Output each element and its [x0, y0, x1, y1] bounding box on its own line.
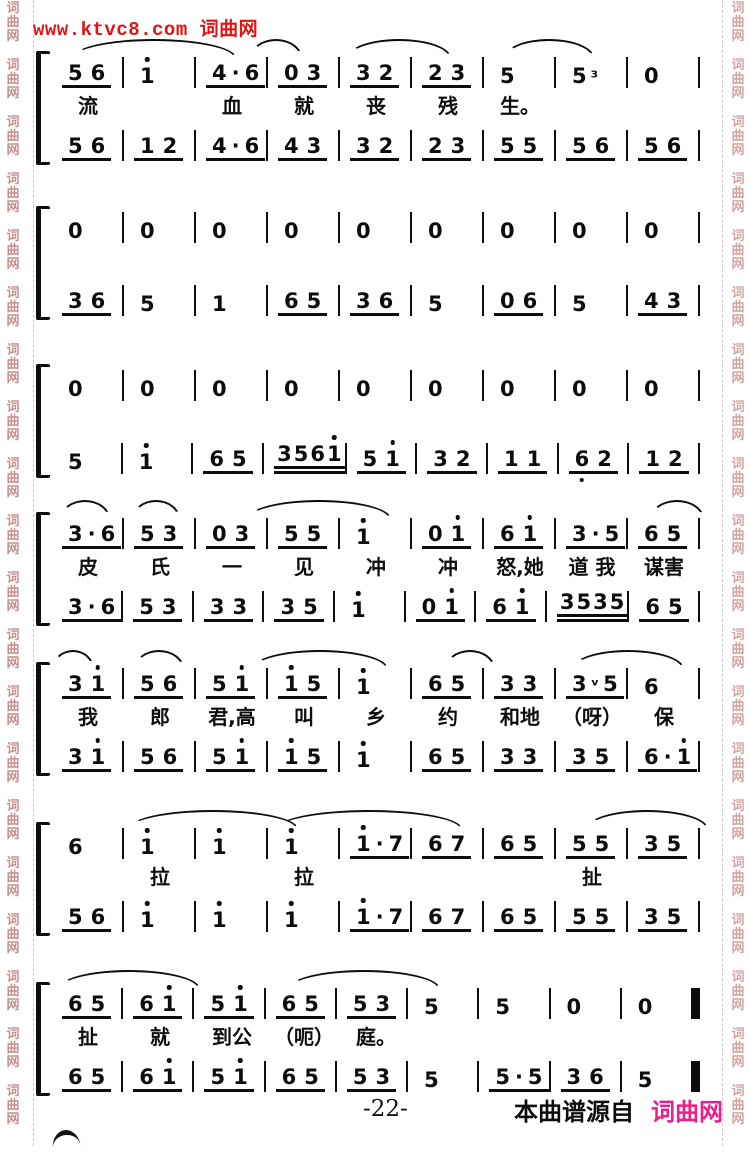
lyric-syllable: 拉 [124, 863, 196, 893]
watermark-char: 网 [729, 600, 747, 614]
watermark-char: 网 [4, 771, 22, 785]
measure: 11 [488, 443, 559, 474]
lyric-syllable [124, 247, 196, 277]
lyric-syllable [268, 247, 340, 277]
slur-arcs [52, 810, 700, 828]
watermark-char: 网 [4, 258, 22, 272]
watermark-char: 词 [4, 230, 22, 244]
voice-2-row: 3·653333510161353565 [52, 591, 700, 622]
lyrics-row: 我郎君,高叫乡约和地（呀）保 [52, 703, 700, 733]
lyric-syllable [52, 863, 124, 893]
measure: 0 [268, 212, 340, 243]
watermark-char: 词 [729, 2, 747, 16]
measure: 0 [412, 370, 484, 401]
system-bracket [36, 512, 50, 626]
watermark-char: 曲 [4, 301, 22, 315]
measure: 01 [406, 591, 477, 622]
measure: 36 [52, 285, 124, 316]
slur-arc [250, 39, 302, 58]
lyric-syllable [556, 92, 628, 122]
slur-arc [445, 650, 495, 669]
measure: 56 [124, 741, 196, 772]
measure: 53 [337, 1061, 408, 1092]
system-bracket [36, 662, 50, 776]
measure: 1 [340, 668, 412, 699]
measure: 32 [340, 130, 412, 161]
watermark-char: 曲 [4, 985, 22, 999]
lyric-syllable: 君,高 [196, 703, 268, 733]
voice-1-row: 5614·603322355³0 [52, 57, 700, 88]
measure: 15 [268, 668, 340, 699]
measure: 0 [556, 212, 628, 243]
measure: 65 [484, 828, 556, 859]
watermark-char: 词 [4, 59, 22, 73]
measure: 43 [628, 285, 700, 316]
measure: 1 [268, 828, 340, 859]
lyric-syllable: 扯 [556, 863, 628, 893]
measure: 6 [52, 828, 124, 859]
watermark-char: 词 [729, 515, 747, 529]
watermark-char: 网 [729, 258, 747, 272]
measure: 5³ [556, 57, 628, 88]
watermark-char: 词 [4, 287, 22, 301]
watermark-char: 词 [4, 800, 22, 814]
watermark-char: 网 [729, 657, 747, 671]
lyric-syllable: 拉 [268, 863, 340, 893]
watermark-char: 词 [729, 230, 747, 244]
slur-arc [60, 500, 110, 519]
lyric-syllable [196, 405, 268, 435]
watermark-char: 曲 [4, 871, 22, 885]
lyric-syllable: （呀） [556, 703, 628, 733]
measure: 0 [268, 370, 340, 401]
lyric-syllable: 庭。 [340, 1023, 412, 1053]
watermark-char: 曲 [729, 16, 747, 30]
lyric-syllable: 道 我 [556, 553, 628, 583]
measure: 0 [340, 370, 412, 401]
lyric-syllable: 血 [196, 92, 268, 122]
lyrics-row: 皮氏一见冲冲怒,她道 我谋害 [52, 553, 700, 583]
lyric-syllable [340, 405, 412, 435]
measure: 5 [622, 1061, 700, 1092]
measure: 4·6 [196, 57, 268, 88]
watermark-char: 网 [4, 1113, 22, 1127]
measure: 56 [52, 130, 124, 161]
watermark-char: 曲 [729, 871, 747, 885]
measure: 67 [412, 901, 484, 932]
watermark-char: 曲 [4, 16, 22, 30]
watermark-char: 网 [729, 771, 747, 785]
lyrics-row: 拉拉扯 [52, 863, 700, 893]
lyric-syllable: 冲 [412, 553, 484, 583]
lyric-syllable: 怒,她 [484, 553, 556, 583]
slur-arcs [52, 970, 700, 988]
lyric-syllable [628, 1023, 700, 1053]
lyric-syllable [556, 247, 628, 277]
voice-2-row: 516535615132116212 [52, 443, 700, 474]
watermark-char: 曲 [729, 757, 747, 771]
measure: 0 [412, 212, 484, 243]
lyric-syllable: 谋害 [628, 553, 700, 583]
watermark-char: 网 [4, 372, 22, 386]
watermark-char: 曲 [729, 985, 747, 999]
watermark-char: 词 [4, 572, 22, 586]
footer-source-label: 本曲谱源自 [514, 1092, 634, 1127]
measure: 3ᵛ5 [556, 668, 628, 699]
slur-arc [347, 39, 451, 58]
watermark-char: 曲 [4, 472, 22, 486]
lyric-syllable [52, 247, 124, 277]
measure: 5 [556, 285, 628, 316]
lyric-syllable [556, 405, 628, 435]
lyric-syllable: 见 [268, 553, 340, 583]
lyrics-row: 扯就到公（呃）庭。 [52, 1023, 700, 1053]
watermark-char: 词 [729, 458, 747, 472]
lyric-syllable: 郎 [124, 703, 196, 733]
watermark-char: 网 [729, 315, 747, 329]
watermark-char: 网 [729, 144, 747, 158]
measure: 3535 [547, 591, 630, 622]
measure: 53 [124, 518, 196, 549]
measure: 61 [123, 988, 194, 1019]
slur-arc [586, 810, 708, 829]
lyric-syllable [196, 863, 268, 893]
measure: 35 [628, 828, 700, 859]
watermark-char: 词 [729, 173, 747, 187]
footer-site-name: 词曲网 [651, 1092, 723, 1127]
measure: 51 [347, 443, 418, 474]
watermark-char: 网 [4, 201, 22, 215]
measure: 55 [484, 130, 556, 161]
measure: 65 [412, 741, 484, 772]
measure: 12 [124, 130, 196, 161]
watermark-char: 词 [4, 686, 22, 700]
watermark-char: 词 [4, 2, 22, 16]
measure: 0 [52, 370, 124, 401]
music-system-6: 61111·767655535 拉拉扯 561111·767655535 [52, 828, 700, 932]
measure: 0 [484, 370, 556, 401]
watermark-char: 网 [729, 486, 747, 500]
measure: 65 [412, 668, 484, 699]
lyric-syllable: 我 [52, 703, 124, 733]
slur-arcs [52, 352, 700, 370]
measure: 65 [266, 988, 337, 1019]
measure: 1 [196, 285, 268, 316]
voice-1-row: 000000000 [52, 212, 700, 243]
measure: 36 [340, 285, 412, 316]
watermark-char: 曲 [729, 358, 747, 372]
measure: 51 [196, 668, 268, 699]
watermark-char: 网 [4, 144, 22, 158]
watermark-char: 曲 [4, 757, 22, 771]
measure: 5·5 [479, 1061, 550, 1092]
voice-2-row: 656151655355·5365 [52, 1061, 700, 1092]
lyric-syllable: 到公 [196, 1023, 268, 1053]
watermark-char: 曲 [729, 187, 747, 201]
measure: 55 [268, 518, 340, 549]
measure: 06 [484, 285, 556, 316]
measure: 55 [556, 901, 628, 932]
measure: 43 [268, 130, 340, 161]
lyric-syllable: 丧 [340, 92, 412, 122]
watermark-char: 词 [729, 800, 747, 814]
music-system-2: 000000000 36516536506543 [52, 212, 700, 316]
watermark-char: 词 [729, 914, 747, 928]
measure: 56 [52, 901, 124, 932]
measure: 55 [556, 828, 628, 859]
voice-2-row: 561111·767655535 [52, 901, 700, 932]
watermark-char: 词 [729, 572, 747, 586]
slur-arc [288, 970, 440, 989]
watermark-char: 词 [4, 743, 22, 757]
voice-1-row: 31565115165333ᵛ56 [52, 668, 700, 699]
lyric-syllable: 保 [628, 703, 700, 733]
watermark-char: 曲 [4, 1042, 22, 1056]
watermark-char: 词 [729, 344, 747, 358]
lyric-syllable: 就 [124, 1023, 196, 1053]
lyrics-row: 流血就丧残生。 [52, 92, 700, 122]
measure: 1 [123, 443, 194, 474]
watermark-char: 网 [729, 30, 747, 44]
lyric-syllable: 约 [412, 703, 484, 733]
watermark-char: 词 [729, 629, 747, 643]
watermark-char: 网 [4, 87, 22, 101]
measure: 56 [124, 668, 196, 699]
measure: 0 [484, 212, 556, 243]
watermark-char: 词 [4, 344, 22, 358]
lyric-syllable [268, 405, 340, 435]
watermark-char: 词 [4, 629, 22, 643]
lyric-syllable: 流 [52, 92, 124, 122]
watermark-char: 词 [729, 743, 747, 757]
measure: 03 [196, 518, 268, 549]
watermark-char: 曲 [4, 130, 22, 144]
lyric-syllable [628, 92, 700, 122]
measure: 1 [340, 741, 412, 772]
measure: 65 [52, 1061, 123, 1092]
slur-arc [504, 39, 594, 58]
watermark-char: 网 [4, 315, 22, 329]
system-bracket [36, 822, 50, 936]
measure: 61 [123, 1061, 194, 1092]
measure: 53 [123, 591, 194, 622]
watermark-char: 网 [4, 999, 22, 1013]
lyric-syllable: 生。 [484, 92, 556, 122]
measure: 3·6 [52, 591, 123, 622]
watermark-char: 词 [4, 116, 22, 130]
watermark-char: 曲 [4, 358, 22, 372]
measure: 0 [556, 370, 628, 401]
music-system-5: 31565115165333ᵛ56 我郎君,高叫乡约和地（呀）保 3156511… [52, 668, 700, 772]
slur-arc [58, 970, 200, 989]
lyrics-row [52, 247, 700, 277]
measure: 1 [335, 591, 406, 622]
watermark-char: 网 [729, 714, 747, 728]
watermark-char: 网 [729, 429, 747, 443]
slur-arcs [52, 39, 700, 57]
watermark-char: 曲 [4, 187, 22, 201]
watermark-char: 网 [729, 543, 747, 557]
measure: 0 [622, 988, 700, 1019]
watermark-char: 词 [729, 287, 747, 301]
measure: 5 [479, 988, 550, 1019]
lyric-syllable [412, 247, 484, 277]
watermark-char: 曲 [729, 1099, 747, 1113]
measure: 0 [124, 212, 196, 243]
measure: 51 [194, 1061, 265, 1092]
watermark-char: 网 [729, 1113, 747, 1127]
measure: 0 [628, 212, 700, 243]
voice-1-row: 000000000 [52, 370, 700, 401]
system-bracket [36, 206, 50, 320]
measure: 12 [629, 443, 700, 474]
lyric-syllable [124, 92, 196, 122]
watermark-char: 曲 [4, 928, 22, 942]
watermark-char: 曲 [729, 244, 747, 258]
watermark-char: 曲 [4, 73, 22, 87]
page-number: -22- [363, 1096, 408, 1122]
measure: 0 [628, 57, 700, 88]
measure: 5 [124, 285, 196, 316]
measure: 56 [628, 130, 700, 161]
watermark-char: 词 [729, 401, 747, 415]
measure: 51 [194, 988, 265, 1019]
measure: 6 [628, 668, 700, 699]
measure: 0 [628, 370, 700, 401]
measure: 67 [412, 828, 484, 859]
measure: 61 [484, 518, 556, 549]
system-bracket [36, 51, 50, 165]
lyric-syllable [628, 247, 700, 277]
measure: 23 [412, 130, 484, 161]
measure: 5 [408, 988, 479, 1019]
music-system-3: 000000000 516535615132116212 [52, 370, 700, 474]
measure: 23 [412, 57, 484, 88]
watermark-char: 曲 [729, 301, 747, 315]
lyric-syllable [52, 405, 124, 435]
watermark-char: 网 [729, 1056, 747, 1070]
measure: 1 [196, 901, 268, 932]
watermark-char: 网 [4, 429, 22, 443]
measure: 5 [408, 1061, 479, 1092]
watermark-char: 网 [729, 372, 747, 386]
watermark-char: 曲 [729, 415, 747, 429]
measure: 3·6 [52, 518, 124, 549]
slur-arcs [52, 650, 700, 668]
measure: 3561 [264, 443, 347, 474]
measure: 35 [556, 741, 628, 772]
measure: 1·7 [340, 901, 412, 932]
watermark-char: 词 [729, 971, 747, 985]
watermark-char: 词 [4, 1085, 22, 1099]
music-system-7: 65615165535500 扯就到公（呃）庭。 656151655355·53… [52, 988, 700, 1092]
lyric-syllable: 一 [196, 553, 268, 583]
measure: 0 [196, 212, 268, 243]
measure: 62 [559, 443, 630, 474]
lyric-syllable: 就 [268, 92, 340, 122]
watermark-char: 曲 [4, 586, 22, 600]
lyric-syllable: 残 [412, 92, 484, 122]
measure: 65 [52, 988, 123, 1019]
watermark-char: 网 [729, 942, 747, 956]
watermark-char: 词 [4, 914, 22, 928]
measure: 33 [484, 741, 556, 772]
measure: 0 [196, 370, 268, 401]
watermark-char: 词 [4, 173, 22, 187]
watermark-char: 词 [729, 686, 747, 700]
watermark-char: 曲 [729, 130, 747, 144]
watermark-char: 网 [729, 999, 747, 1013]
lyric-syllable [340, 863, 412, 893]
right-edge-dashed-line [722, 0, 723, 1146]
measure: 51 [196, 741, 268, 772]
measure: 0 [340, 212, 412, 243]
measure: 65 [628, 518, 700, 549]
watermark-char: 网 [4, 714, 22, 728]
music-system-4: 3·6530355101613·565 皮氏一见冲冲怒,她道 我谋害 3·653… [52, 518, 700, 622]
measure: 31 [52, 741, 124, 772]
watermark-char: 词 [729, 857, 747, 871]
lyric-syllable [484, 863, 556, 893]
watermark-char: 网 [729, 201, 747, 215]
lyric-syllable: 冲 [340, 553, 412, 583]
watermark-char: 网 [4, 486, 22, 500]
measure: 1·7 [340, 828, 412, 859]
lyric-syllable [412, 863, 484, 893]
lyrics-row [52, 405, 700, 435]
measure: 01 [412, 518, 484, 549]
watermark-char: 曲 [729, 529, 747, 543]
slur-arc [134, 650, 184, 669]
measure: 65 [484, 901, 556, 932]
measure: 5 [412, 285, 484, 316]
watermark-char: 曲 [729, 472, 747, 486]
measure: 65 [193, 443, 264, 474]
watermark-char: 网 [729, 828, 747, 842]
measure: 36 [551, 1061, 622, 1092]
lyric-syllable [484, 247, 556, 277]
watermark-char: 网 [4, 657, 22, 671]
measure: 6·1 [628, 741, 700, 772]
measure: 56 [52, 57, 124, 88]
measure: 03 [268, 57, 340, 88]
watermark-char: 网 [729, 885, 747, 899]
voice-1-row: 61111·767655535 [52, 828, 700, 859]
system-bracket [36, 982, 50, 1096]
watermark-char: 曲 [729, 814, 747, 828]
watermark-char: 网 [4, 1056, 22, 1070]
lyric-syllable [412, 405, 484, 435]
watermark-char: 词 [4, 401, 22, 415]
measure: 5 [52, 443, 123, 474]
lyric-syllable: 和地 [484, 703, 556, 733]
lyric-syllable: 乡 [340, 703, 412, 733]
lyric-syllable [628, 863, 700, 893]
watermark-char: 词 [4, 971, 22, 985]
page-edge-cutoff-mark [51, 1129, 81, 1152]
watermark-char: 曲 [729, 700, 747, 714]
slur-arcs [52, 194, 700, 212]
slur-arc [650, 500, 704, 519]
lyric-syllable: 皮 [52, 553, 124, 583]
measure: 1 [124, 901, 196, 932]
watermark-char: 词 [729, 59, 747, 73]
slur-arc [247, 500, 391, 519]
watermark-char: 曲 [4, 529, 22, 543]
watermark-char: 词 [729, 1028, 747, 1042]
lyric-syllable: 氏 [124, 553, 196, 583]
measure: 0 [551, 988, 622, 1019]
